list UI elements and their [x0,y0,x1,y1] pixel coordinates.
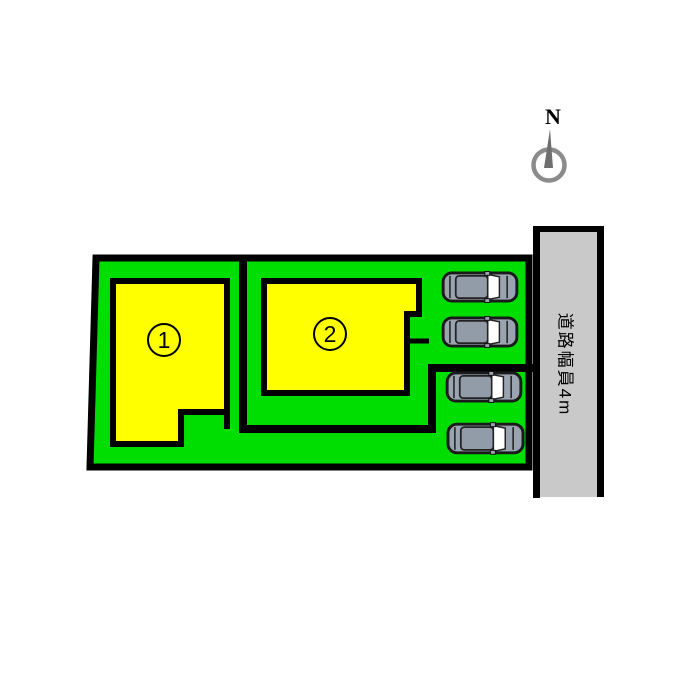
car-icon [447,371,521,402]
road-top-edge [533,226,604,232]
site-plan: N 道路幅員4m 1 2 [0,0,700,700]
lot-1-badge: 1 [147,323,181,357]
road-width-label: 道路幅員4m [555,265,580,465]
site-plan-canvas [0,0,700,700]
car-icon [443,271,517,302]
compass-icon [534,129,565,181]
car-icon [443,316,517,347]
compass-north-label: N [540,104,566,130]
road-right-edge [597,227,604,497]
road-left-edge [533,227,540,498]
lot-2-badge: 2 [313,317,347,351]
lot-1-number: 1 [158,329,171,352]
lot-2-number: 2 [324,323,337,346]
car-icon [448,423,523,455]
